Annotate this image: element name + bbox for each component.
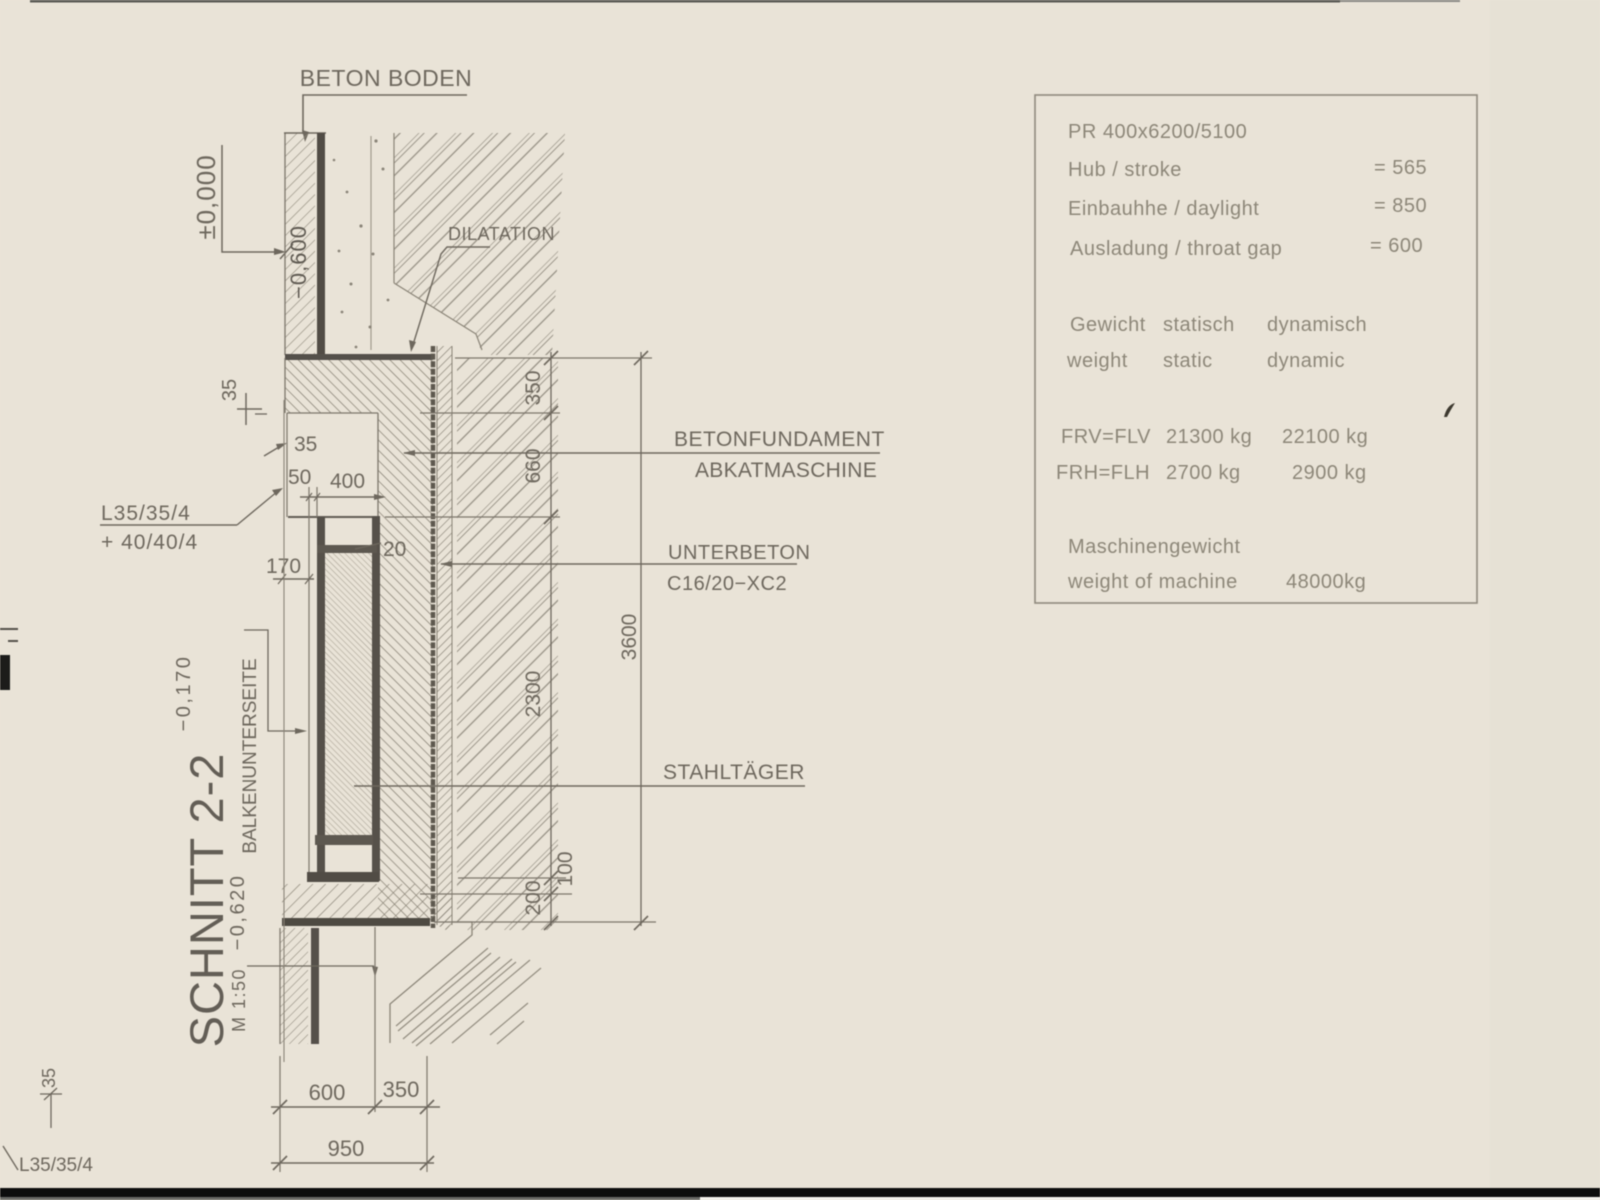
svg-text:Gewicht: Gewicht [1070,314,1146,336]
svg-text:50: 50 [288,466,311,489]
svg-text:Maschinengewicht: Maschinengewicht [1068,536,1241,558]
svg-text:ABKATMASCHINE: ABKATMASCHINE [695,459,877,482]
svg-text:Einbauhhe / daylight: Einbauhhe / daylight [1068,198,1259,220]
svg-text:FRH=FLH: FRH=FLH [1056,462,1150,484]
svg-text:weight of machine: weight of machine [1067,571,1238,593]
svg-text:2300: 2300 [522,671,545,718]
svg-text:FRV=FLV: FRV=FLV [1061,426,1151,448]
svg-text:35: 35 [39,1068,59,1088]
svg-text:dynamic: dynamic [1267,350,1345,372]
svg-text:Hub / stroke: Hub / stroke [1068,159,1182,181]
svg-text:BETON BODEN: BETON BODEN [300,65,473,91]
svg-text:SCHNITT 2-2: SCHNITT 2-2 [180,753,233,1048]
svg-text:350: 350 [383,1077,420,1102]
svg-text:100: 100 [554,851,577,886]
svg-text:static: static [1163,350,1213,372]
svg-text:400: 400 [330,470,365,493]
svg-text:−0,600: −0,600 [286,225,311,299]
svg-text:35: 35 [219,379,241,401]
svg-text:660: 660 [522,448,545,483]
svg-text:21300 kg: 21300 kg [1166,426,1252,448]
svg-text:3600: 3600 [618,614,641,661]
svg-text:BALKENUNTERSEITE: BALKENUNTERSEITE [240,658,261,853]
svg-text:M 1:50: M 1:50 [229,968,249,1032]
svg-text:48000kg: 48000kg [1286,571,1366,593]
svg-text:L35/35/4: L35/35/4 [19,1155,93,1176]
svg-text:600: 600 [309,1080,346,1105]
svg-text:−0,170: −0,170 [173,655,195,732]
svg-text:statisch: statisch [1163,314,1235,336]
svg-text:35: 35 [294,433,317,456]
svg-text:200: 200 [522,880,545,915]
svg-text:+ 40/40/4: + 40/40/4 [101,531,198,554]
svg-text:= 600: = 600 [1370,235,1423,257]
svg-text:±0,000: ±0,000 [191,154,221,239]
svg-text:2700 kg: 2700 kg [1166,462,1241,484]
svg-text:dynamisch: dynamisch [1267,314,1367,336]
svg-text:= 565: = 565 [1374,157,1427,179]
svg-text:350: 350 [522,370,545,405]
svg-text:C16/20−XC2: C16/20−XC2 [667,573,787,595]
svg-text:STAHLTÄGER: STAHLTÄGER [663,761,805,784]
svg-text:L35/35/4: L35/35/4 [101,502,191,525]
svg-text:950: 950 [328,1136,365,1161]
svg-text:2900 kg: 2900 kg [1292,462,1367,484]
svg-text:20: 20 [383,538,406,561]
svg-text:−0,620: −0,620 [227,874,249,951]
svg-text:Ausladung / throat gap: Ausladung / throat gap [1070,238,1282,260]
svg-text:PR 400x6200/5100: PR 400x6200/5100 [1068,121,1247,143]
svg-text:DILATATION: DILATATION [448,224,555,244]
svg-text:= 850: = 850 [1374,195,1427,217]
svg-text:22100 kg: 22100 kg [1282,426,1368,448]
svg-text:UNTERBETON: UNTERBETON [668,542,810,564]
svg-text:BETONFUNDAMENT: BETONFUNDAMENT [674,428,885,451]
svg-text:weight: weight [1066,350,1128,372]
